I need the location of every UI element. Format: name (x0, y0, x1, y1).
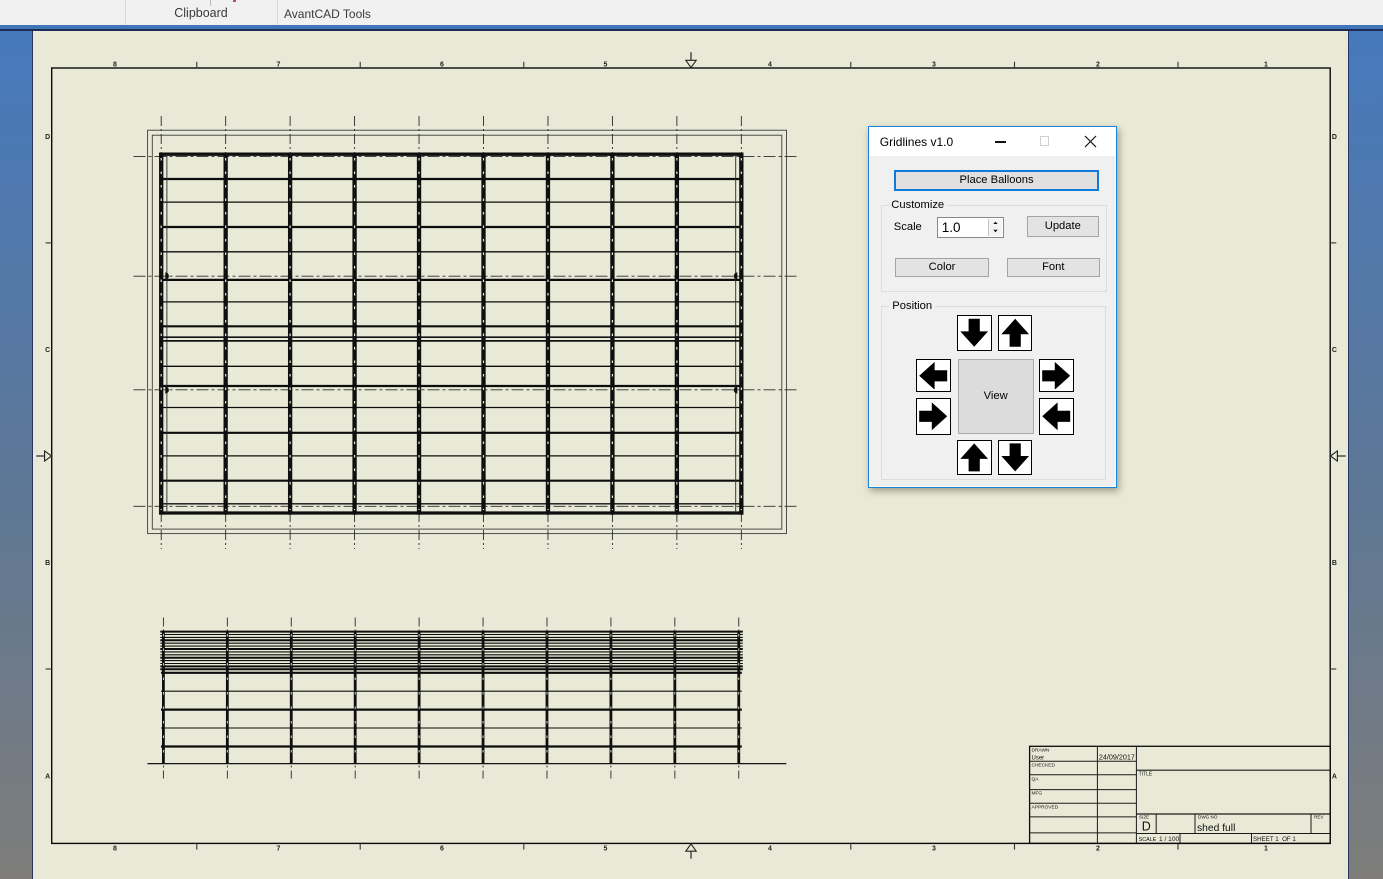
svg-text:5: 5 (604, 846, 608, 853)
svg-text:6: 6 (440, 61, 444, 68)
svg-text:2: 2 (1096, 846, 1100, 853)
svg-text:DRAWN: DRAWN (1032, 748, 1050, 754)
svg-text:7: 7 (277, 846, 281, 853)
svg-text:8: 8 (113, 61, 117, 68)
svg-text:A: A (1332, 773, 1337, 780)
svg-text:24/09/2017: 24/09/2017 (1099, 753, 1135, 762)
svg-text:1: 1 (1264, 846, 1268, 853)
svg-text:MFG: MFG (1032, 791, 1043, 797)
svg-text:6: 6 (440, 846, 444, 853)
svg-text:shed full: shed full (1197, 823, 1235, 834)
svg-text:D: D (1332, 134, 1337, 141)
svg-text:TITLE: TITLE (1139, 771, 1153, 777)
svg-text:D: D (45, 134, 50, 141)
svg-text:B: B (1332, 560, 1337, 567)
svg-text:4: 4 (768, 61, 772, 68)
svg-text:4: 4 (768, 846, 772, 853)
svg-text:1 / 100: 1 / 100 (1159, 836, 1179, 843)
svg-text:SCALE: SCALE (1139, 837, 1157, 843)
svg-text:C: C (45, 347, 50, 354)
svg-text:A: A (45, 773, 50, 780)
svg-text:QA: QA (1032, 777, 1040, 783)
svg-text:User: User (1032, 755, 1045, 761)
svg-text:7: 7 (277, 61, 281, 68)
svg-text:3: 3 (932, 61, 936, 68)
svg-text:3: 3 (932, 846, 936, 853)
svg-text:CHECKED: CHECKED (1032, 763, 1056, 769)
svg-text:C: C (1332, 347, 1337, 354)
svg-text:1: 1 (1264, 61, 1268, 68)
svg-text:2: 2 (1096, 61, 1100, 68)
svg-text:B: B (45, 560, 50, 567)
svg-text:REV: REV (1314, 815, 1324, 820)
svg-text:DWG NO: DWG NO (1198, 815, 1218, 820)
svg-text:APPROVED: APPROVED (1032, 805, 1059, 811)
svg-text:D: D (1142, 820, 1151, 834)
svg-text:5: 5 (604, 61, 608, 68)
svg-text:8: 8 (113, 846, 117, 853)
svg-text:SHEET 1 OF 1: SHEET 1 OF 1 (1253, 836, 1296, 843)
